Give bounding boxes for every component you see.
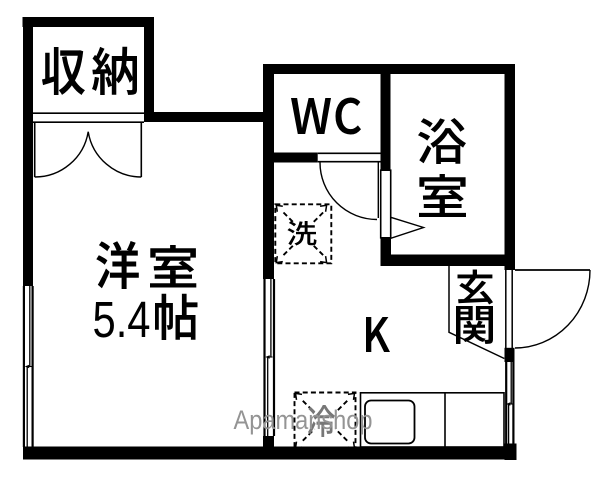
svg-text:5.4: 5.4: [93, 291, 151, 348]
svg-text:Apamanshop: Apamanshop: [234, 405, 373, 435]
